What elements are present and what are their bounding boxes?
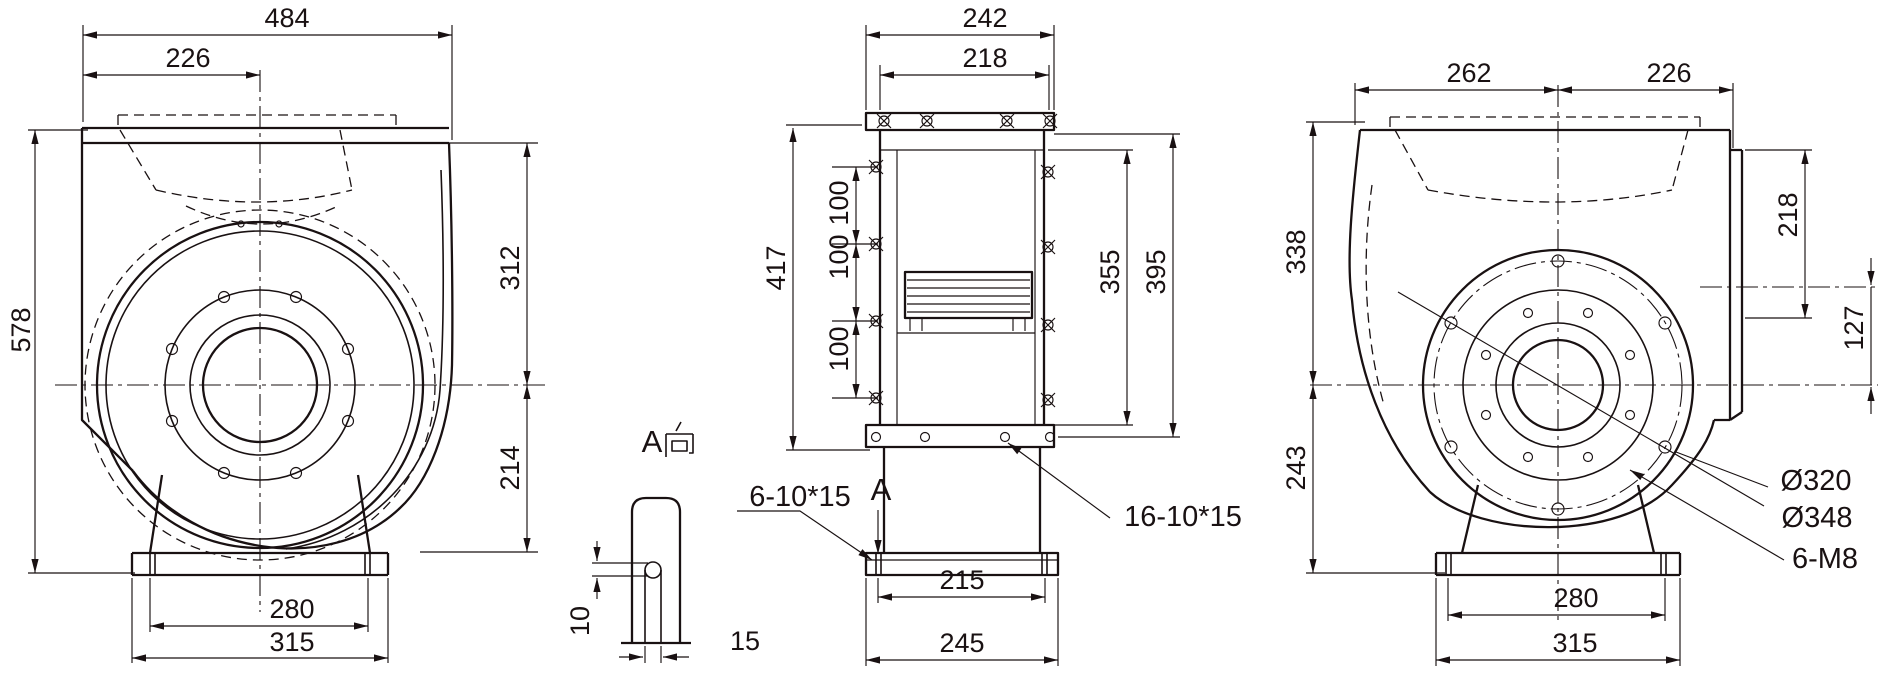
side-view: 242 218 417 100 100 100 355 395 215 245 … (737, 3, 1242, 666)
dim-foot-slot-spacing: 215 (939, 565, 984, 595)
flange-bolt (1000, 114, 1014, 128)
dim-outlet-height: 218 (1773, 192, 1803, 237)
dimension-lines (597, 541, 689, 657)
flange-hole (921, 433, 930, 442)
bolt-hole (1584, 453, 1593, 462)
scroll-inner-wall (286, 170, 443, 549)
scroll-outline (1350, 130, 1742, 527)
rear-view: 262 226 338 243 218 127 Ø320 Ø348 6-M8 2… (1281, 58, 1878, 666)
bolt-hole (1482, 411, 1491, 420)
xiang-character (666, 422, 693, 457)
flange-slot-leader (1008, 443, 1110, 518)
dim-flange-height: 417 (761, 245, 791, 290)
bolt-hole (1626, 411, 1635, 420)
dim-center-to-top: 338 (1281, 229, 1311, 274)
dim-center-to-left: 262 (1446, 58, 1491, 88)
dim-bolt-pitch-top: 100 (824, 180, 854, 225)
dim-center-to-base: 243 (1281, 445, 1311, 490)
dim-bolt-pitch-mid: 100 (824, 234, 854, 279)
scroll-outline (82, 128, 452, 548)
bolt-hole (1584, 309, 1593, 318)
dim-center-to-base: 214 (495, 445, 525, 490)
view-label-a: A (642, 424, 663, 459)
casing-outline (866, 113, 1058, 575)
base-slots (1446, 553, 1666, 575)
motor-block (905, 272, 1032, 318)
note-motor-bolts: 6-M8 (1792, 543, 1858, 575)
bolt-hole (1524, 453, 1533, 462)
dim-outlet-center-offset: 127 (1839, 305, 1869, 350)
flange-hole (872, 433, 881, 442)
note-flange-slots: 16-10*15 (1124, 501, 1242, 533)
dim-overall-width: 484 (264, 3, 309, 33)
dim-overall-height: 578 (6, 307, 36, 352)
dim-casing-depth: 218 (962, 43, 1007, 73)
note-foot-slots: 6-10*15 (749, 481, 851, 513)
flange-bolt (1043, 114, 1057, 128)
dim-flange-diameter: Ø348 (1782, 502, 1853, 534)
dim-bolt-circle-diameter: Ø320 (1781, 465, 1852, 497)
note-view-mark: A (871, 472, 892, 507)
motor-fins (907, 280, 1030, 331)
extension-lines (1306, 83, 1812, 666)
bolt-circle-diagonal (1398, 292, 1764, 506)
dim-slot-width: 10 (565, 606, 595, 636)
flange-bolt (920, 114, 934, 128)
flange-bolt (877, 114, 891, 128)
dim-bolt-pitch-bottom: 100 (824, 326, 854, 371)
center-lines (55, 70, 545, 612)
center-lines (1310, 85, 1878, 620)
flange-hole (1001, 433, 1010, 442)
drawing-canvas: 484 226 578 312 214 280 315 (0, 0, 1884, 673)
dim-base-bolt-spacing: 280 (1553, 583, 1598, 613)
bolt-hole (1524, 309, 1533, 318)
dim-casing-height: 355 (1095, 249, 1125, 294)
slot-sides (645, 570, 661, 643)
casing-inner-lines (866, 150, 1058, 560)
dim-slot-length: 15 (730, 626, 760, 656)
foot-slot-leader (737, 511, 872, 560)
dim-inlet-center-offset: 226 (165, 43, 210, 73)
bolt-hole (1626, 351, 1635, 360)
detail-view: 10 15 A (565, 422, 760, 663)
dim-bolt-span: 395 (1141, 249, 1171, 294)
flange-bolt (1041, 240, 1055, 254)
dim-base-width: 315 (269, 627, 314, 657)
flange-bolt (1041, 165, 1055, 179)
dim-center-to-top: 312 (495, 245, 525, 290)
flange-bolt (1041, 318, 1055, 332)
bolt-hole (1482, 351, 1491, 360)
front-view: 484 226 578 312 214 280 315 (6, 3, 545, 663)
extension-lines (28, 25, 538, 663)
dim-base-width: 315 (1552, 628, 1597, 658)
slot-detail-outline (621, 498, 691, 643)
flange-bolt (1041, 393, 1055, 407)
dim-foot-depth: 245 (939, 628, 984, 658)
fan-drawing: 484 226 578 312 214 280 315 (0, 0, 1884, 673)
dim-base-bolt-spacing: 280 (269, 594, 314, 624)
dim-overall-depth: 242 (962, 3, 1007, 33)
dim-center-to-right: 226 (1646, 58, 1691, 88)
inlet-hidden-lines (118, 115, 396, 224)
